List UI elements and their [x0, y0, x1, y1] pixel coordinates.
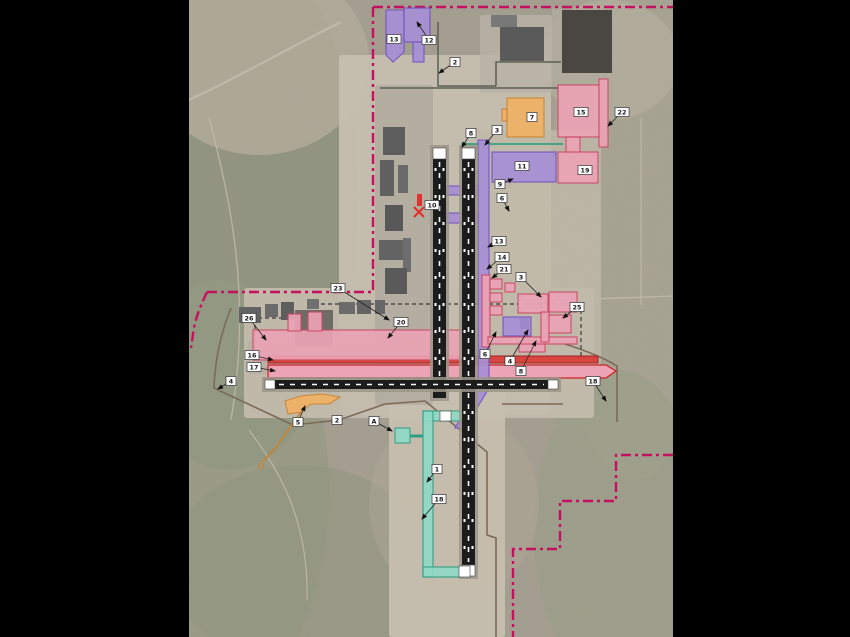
callout-number: 21 [500, 265, 509, 273]
callout-13: 13 [387, 35, 401, 44]
existing-building [379, 240, 405, 260]
callout-number: 10 [428, 201, 437, 209]
existing-building [491, 15, 517, 27]
red-pavement-mark [417, 194, 422, 206]
callout-10: 10 [425, 201, 439, 210]
future-terminal-tab-2 [308, 312, 322, 331]
callout-number: 6 [500, 194, 505, 202]
existing-building [500, 27, 544, 61]
runway-threshold [462, 148, 475, 159]
taxiway-hold-cap [440, 411, 451, 421]
callout-number: 18 [589, 377, 598, 385]
parallel-runway-west [430, 145, 449, 401]
callout-15: 15 [574, 108, 588, 117]
runway-threshold [548, 380, 558, 389]
complex-pink-strip [482, 275, 490, 347]
taxiway-hold-cap [459, 566, 470, 577]
callout-number: 15 [577, 108, 586, 116]
callout-number: 18 [435, 495, 444, 503]
runway-threshold [265, 380, 275, 389]
existing-building [383, 127, 405, 155]
callout-number: 20 [397, 318, 406, 326]
callout-number: 2 [453, 58, 457, 66]
callout-number: 1 [435, 465, 439, 473]
callout-11: 11 [515, 162, 529, 171]
callout-number: 9 [498, 180, 503, 188]
existing-building [307, 299, 319, 309]
existing-building [398, 165, 408, 193]
future-area-purple-nw-3 [413, 42, 424, 62]
callout-number: 22 [618, 108, 627, 116]
existing-building [385, 205, 403, 231]
future-terminal-tab-1 [288, 314, 301, 331]
existing-building [265, 304, 278, 317]
callout-number: 5 [296, 418, 300, 426]
plan-svg: 1312271522831119961013142132523262016174… [189, 0, 673, 637]
complex-pink-4 [490, 306, 502, 315]
callout-number: 14 [498, 253, 507, 261]
future-area-orange-tab [502, 109, 507, 121]
complex-pink-3 [505, 283, 515, 292]
complex-pink-7 [547, 315, 571, 333]
callout-number: 13 [390, 35, 399, 43]
main-runway [459, 145, 478, 579]
future-area-pink-stub [566, 137, 580, 153]
callout-19: 19 [578, 166, 592, 175]
callout-number: 17 [250, 363, 259, 371]
callout-number: 11 [518, 162, 527, 170]
callout-number: 12 [425, 36, 434, 44]
callout-number: 3 [495, 126, 499, 134]
existing-building [380, 160, 394, 196]
complex-pink-5 [518, 294, 548, 313]
existing-building [339, 302, 355, 314]
future-area-pink-strip [599, 79, 608, 147]
callout-number: 8 [519, 367, 524, 375]
callout-number: 16 [248, 351, 257, 359]
callout-number: 3 [519, 273, 523, 281]
crosswind-runway [262, 377, 561, 392]
complex-pink-vert [541, 312, 549, 342]
callout-number: 4 [508, 357, 513, 365]
complex-pink-band [488, 337, 577, 344]
future-area-orange-north [507, 98, 544, 137]
callout-number: 7 [530, 113, 534, 121]
airport-layout-plan-map: 1312271522831119961013142132523262016174… [189, 0, 673, 637]
teal-taxiway-west [423, 411, 433, 577]
callout-number: 8 [469, 129, 474, 137]
callout-number: 26 [245, 314, 254, 322]
callout-number: 23 [334, 284, 343, 292]
callout-number: 13 [495, 237, 504, 245]
callout-number: 25 [573, 303, 582, 311]
callout-number: A [372, 417, 377, 425]
runway-threshold [433, 148, 446, 159]
teal-holding-pad [395, 428, 410, 443]
callout-number: 6 [483, 350, 488, 358]
complex-pink-1 [490, 279, 502, 289]
pavement-area [552, 8, 562, 76]
callout-2: 2 [332, 416, 342, 425]
complex-pink-2 [490, 293, 502, 302]
callout-number: 4 [229, 377, 234, 385]
letterbox-stage: 1312271522831119961013142132523262016174… [0, 0, 850, 637]
existing-building [562, 10, 612, 73]
callout-number: 2 [335, 416, 339, 424]
callout-7: 7 [527, 113, 537, 122]
existing-building [385, 268, 407, 294]
existing-building [403, 238, 411, 272]
callout-number: 19 [581, 166, 590, 174]
